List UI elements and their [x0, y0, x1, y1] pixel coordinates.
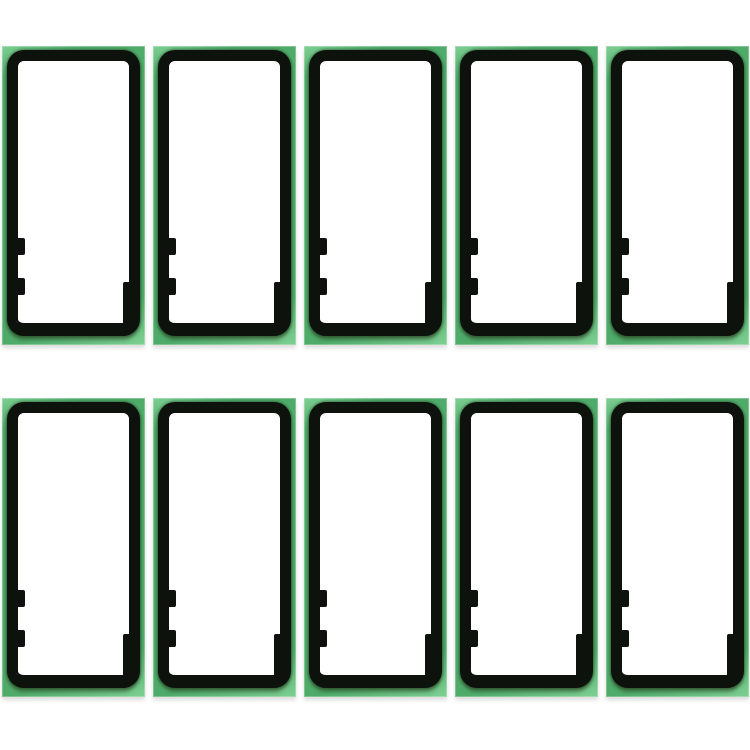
- left-alignment-tab: [318, 278, 327, 295]
- right-edge-step-tab: [274, 634, 282, 678]
- right-edge-step-tab: [123, 634, 131, 678]
- left-alignment-tab: [620, 590, 629, 607]
- adhesive-sticker-sheet: [2, 46, 145, 345]
- adhesive-frame-outline: [460, 402, 593, 688]
- left-alignment-tab: [16, 238, 25, 255]
- left-alignment-tab: [167, 278, 176, 295]
- left-alignment-tab: [469, 630, 478, 647]
- left-alignment-tab: [469, 238, 478, 255]
- right-edge-step-tab: [123, 282, 131, 326]
- adhesive-sticker-sheet: [153, 46, 296, 345]
- left-alignment-tab: [469, 278, 478, 295]
- adhesive-sticker-sheet: [304, 398, 447, 697]
- adhesive-frame-outline: [158, 50, 291, 336]
- left-alignment-tab: [620, 630, 629, 647]
- left-alignment-tab: [318, 630, 327, 647]
- adhesive-sticker-sheet: [2, 398, 145, 697]
- right-edge-step-tab: [727, 634, 735, 678]
- adhesive-frame-outline: [611, 402, 744, 688]
- adhesive-sticker-sheet: [153, 398, 296, 697]
- right-edge-step-tab: [576, 282, 584, 326]
- adhesive-frame-outline: [158, 402, 291, 688]
- right-edge-step-tab: [576, 634, 584, 678]
- right-edge-step-tab: [425, 634, 433, 678]
- adhesive-sticker-sheet: [455, 46, 598, 345]
- sticker-grid: [2, 46, 749, 697]
- left-alignment-tab: [620, 238, 629, 255]
- left-alignment-tab: [16, 630, 25, 647]
- left-alignment-tab: [167, 590, 176, 607]
- left-alignment-tab: [318, 590, 327, 607]
- adhesive-frame-outline: [309, 50, 442, 336]
- left-alignment-tab: [167, 238, 176, 255]
- left-alignment-tab: [16, 590, 25, 607]
- left-alignment-tab: [469, 590, 478, 607]
- left-alignment-tab: [167, 630, 176, 647]
- adhesive-frame-outline: [611, 50, 744, 336]
- left-alignment-tab: [318, 238, 327, 255]
- adhesive-frame-outline: [309, 402, 442, 688]
- adhesive-sticker-sheet: [606, 398, 749, 697]
- right-edge-step-tab: [425, 282, 433, 326]
- adhesive-frame-outline: [7, 402, 140, 688]
- right-edge-step-tab: [274, 282, 282, 326]
- adhesive-frame-outline: [7, 50, 140, 336]
- adhesive-sticker-sheet: [304, 46, 447, 345]
- adhesive-frame-outline: [460, 50, 593, 336]
- right-edge-step-tab: [727, 282, 735, 326]
- adhesive-sticker-sheet: [606, 46, 749, 345]
- left-alignment-tab: [620, 278, 629, 295]
- adhesive-sticker-sheet: [455, 398, 598, 697]
- left-alignment-tab: [16, 278, 25, 295]
